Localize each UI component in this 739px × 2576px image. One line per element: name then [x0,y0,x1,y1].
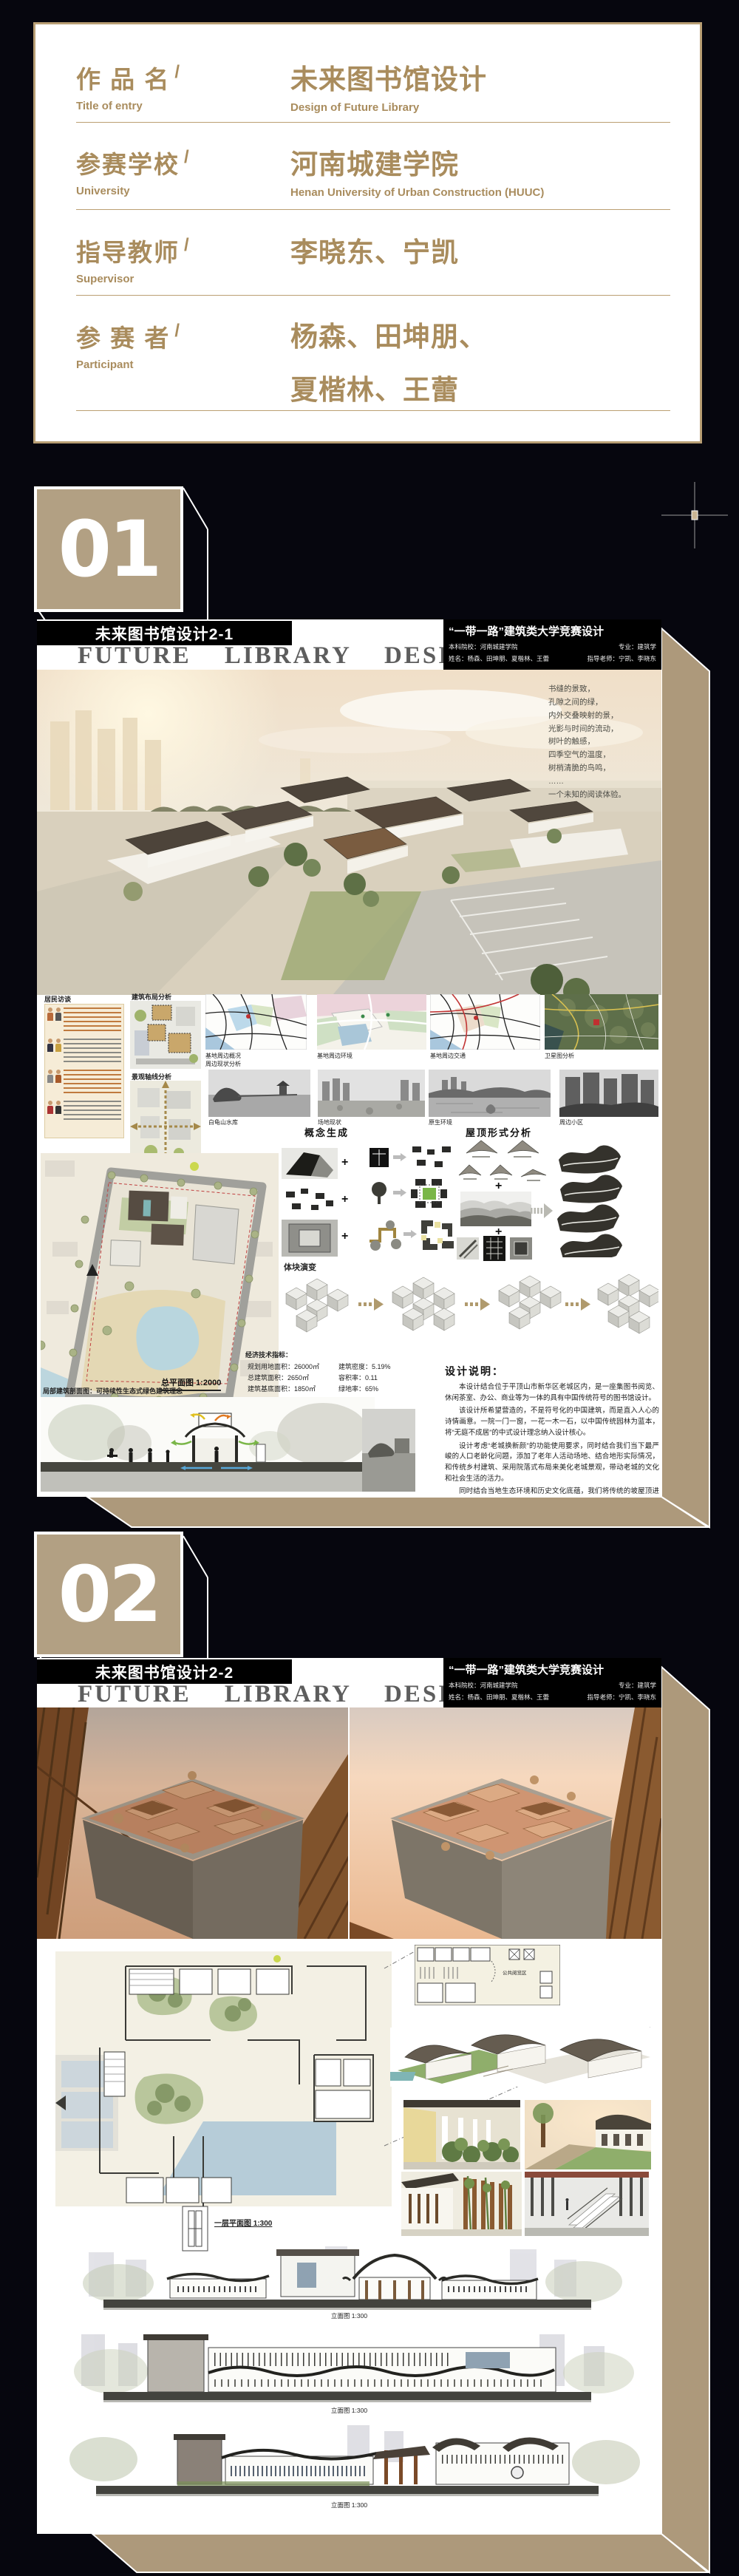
roof-wave-forms [556,1139,624,1257]
photo-divider [348,1707,350,1939]
elevation1-caption: 立面图 1:300 [37,2311,661,2320]
elevation3-caption: 立面图 1:300 [37,2501,661,2509]
map1-caption2: 周边现状分析 [205,1060,241,1068]
concept-generation-label: 概念生成 [304,1125,349,1139]
model-photo-left [37,1707,350,1939]
photo4-caption: 周边小区 [559,1118,583,1126]
competition-title: “一带一路”建筑类大学竞赛设计 [449,1662,656,1677]
arrow-icon [531,1202,553,1220]
section-badge-01: 01 [34,486,183,612]
poster-title-en: FUTURE LIBRARY DESIGN [78,1681,491,1708]
photo1-caption: 白龟山水库 [208,1118,238,1126]
badge-number: 02 [58,1549,160,1639]
elevation-1 [37,2242,661,2310]
interview-item [45,1067,123,1098]
poster1-right-flap [661,628,709,1527]
map-site-environment [317,994,426,1050]
elevation2-caption: 立面图 1:300 [37,2406,661,2415]
hero-poem: 书缝的景致， 孔隙之间的绿， 内外交叠映射的景， 光影与时间的流动， 树叶的触感… [548,683,659,802]
interview-text [64,1101,121,1123]
names-line: 姓名：杨森、田坤朋、夏楷林、王蕾 [449,654,549,663]
indicators-title: 经济技术指标： [245,1350,292,1359]
map1-caption: 基地周边概况 [205,1052,241,1060]
model-photo-right [350,1707,661,1939]
render-bamboo-corridor [401,2172,522,2236]
plus-sign: + [341,1156,348,1169]
major-line: 专业：建筑学 [619,642,656,651]
poster1-title: 未来图书馆设计2-1 [95,622,234,645]
elevation-2 [37,2327,661,2404]
interview-item [45,1005,123,1036]
roof-type-icons [454,1137,551,1183]
plus-sign: + [341,1193,348,1206]
second-floor-plan [415,1945,560,2005]
interview-text [64,1070,121,1095]
section-badge-02: 02 [34,1532,183,1657]
render-stair-hall [525,2172,649,2236]
cutaway-axon-render [390,2028,656,2087]
names-line: 姓名：杨森、田坤朋、夏楷林、王蕾 [449,1693,549,1702]
poster2-bottom-flap [92,2534,708,2572]
mass-evolution-label: 体块演变 [284,1261,316,1273]
floor2-room-label: 公共阅览区 [503,1968,527,1976]
map-site-traffic [430,994,540,1050]
statement-title: 设计说明： [445,1364,659,1379]
poster1-competition-box: “一带一路”建筑类大学竞赛设计 本科院校：河南城建学院 专业：建筑学 姓名：杨森… [443,619,661,670]
elevation-3 [37,2421,661,2499]
competition-title: “一带一路”建筑类大学竞赛设计 [449,623,656,639]
poster1-bottom-flap [87,1497,708,1527]
plus-sign: + [341,1230,348,1243]
massing-axon-sequence [282,1273,658,1344]
photo-reservoir [208,1070,310,1117]
badge-number: 01 [58,504,160,594]
design-statement: 设计说明： 本设计结合位于平顶山市新华区老城区内，是一座集图书阅览、休闲茶室、办… [445,1364,659,1497]
photo-native-environment [429,1070,551,1117]
advisor-line: 指导老师：宁凯、李晓东 [587,654,656,663]
ground-floor-plan [55,1951,392,2206]
concept-row-grid [369,1145,454,1170]
section-caption: 局部建筑剖面图：可持续性生态式绿色建筑理念 [43,1386,183,1396]
concept-row-path [369,1219,457,1251]
poster2-competition-box: “一带一路”建筑类大学竞赛设计 本科院校：河南城建学院 专业：建筑学 姓名：杨森… [443,1658,661,1708]
poster-board-2-2: 未来图书馆设计2-2 FUTURE LIBRARY DESIGN “一带一路”建… [37,1658,661,2534]
poster-title-en: FUTURE LIBRARY DESIGN [78,642,491,670]
school-line: 本科院校：河南城建学院 [449,642,518,651]
school-line: 本科院校：河南城建学院 [449,1681,518,1690]
mass-evolve-img3 [282,1220,338,1257]
photo-site-current [318,1070,425,1117]
photo-nearby-towers [559,1070,658,1117]
interview-item [45,1036,123,1067]
map-site-overview [205,994,307,1050]
render-courtyard-garden [403,2100,520,2169]
interview-panel [44,1004,124,1138]
interview-text [64,1007,121,1033]
mass-evolve-img2 [282,1187,338,1214]
indicators-col1: 规划用地面积：26000㎡ 总建筑面积：2650㎡ 建筑基底面积：1850㎡ [248,1362,319,1395]
map4-caption: 卫星图分析 [545,1052,574,1060]
photo3-caption: 原生环境 [429,1118,452,1126]
crosshair-mark [661,482,728,548]
poster2-title: 未来图书馆设计2-2 [95,1661,234,1683]
mountain-layers-image [460,1192,531,1226]
mass-evolve-img1 [282,1148,338,1179]
concept-row-tree [369,1179,454,1209]
indicators-col2: 建筑密度：5.19% 容积率：0.11 绿地率：65% [338,1362,391,1395]
poster-board-2-1: 未来图书馆设计2-1 FUTURE LIBRARY DESIGN “一带一路”建… [37,619,661,1497]
render-entry-path [525,2100,651,2169]
statement-side-photo [362,1409,415,1492]
building-section-drawing [41,1397,375,1492]
structure-photos [457,1236,534,1261]
map-satellite [545,994,658,1050]
interview-label: 居民访谈 [44,994,71,1004]
major-line: 专业：建筑学 [619,1681,656,1690]
competition-entry-page: { "info_card": { "slash": "/", "rows": [… [0,0,739,2576]
map2-caption: 基地周边环境 [317,1052,353,1060]
advisor-line: 指导老师：宁凯、李晓东 [587,1693,656,1702]
map3-caption: 基地周边交通 [430,1052,466,1060]
poster2-right-flap [661,1667,709,2572]
interview-text [64,1039,121,1064]
interview-item [45,1098,123,1126]
layout-analysis-diagram [130,1001,201,1069]
master-site-plan [41,1153,279,1408]
floor1-caption: 一层平面图 1:300 [214,2217,272,2228]
